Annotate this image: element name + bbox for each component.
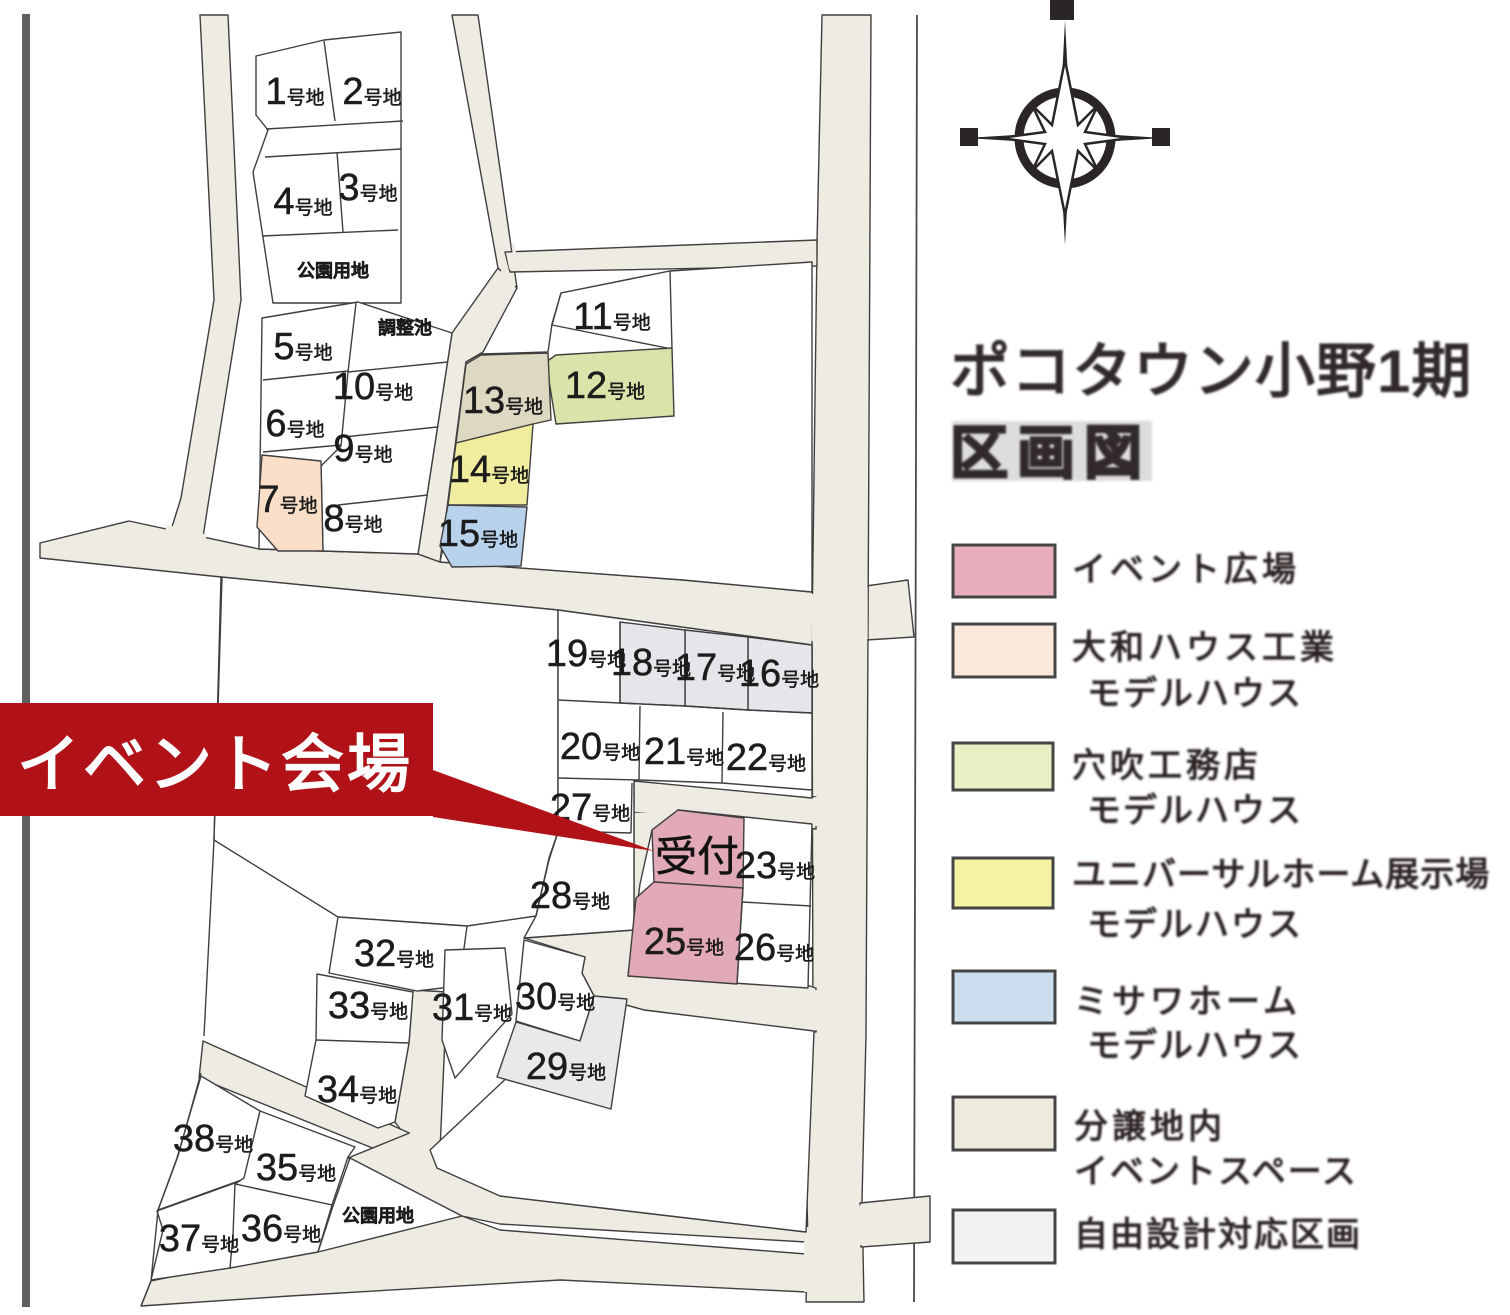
svg-text:モデルハウス: モデルハウス bbox=[1087, 905, 1303, 944]
svg-text:ユニバーサルホーム展示場: ユニバーサルホーム展示場 bbox=[1072, 856, 1490, 894]
svg-text:自由設計対応区画: 自由設計対応区画 bbox=[1074, 1216, 1362, 1254]
svg-text:受付: 受付 bbox=[655, 833, 739, 880]
svg-text:モデルハウス: モデルハウス bbox=[1087, 791, 1303, 830]
svg-text:分譲地内: 分譲地内 bbox=[1074, 1108, 1226, 1146]
svg-text:ポコタウン小野1期: ポコタウン小野1期 bbox=[950, 338, 1472, 405]
svg-text:穴吹工務店: 穴吹工務店 bbox=[1072, 747, 1262, 785]
svg-text:イベント会場: イベント会場 bbox=[17, 730, 413, 800]
svg-text:モデルハウス: モデルハウス bbox=[1087, 1026, 1303, 1065]
svg-text:イベント広場: イベント広場 bbox=[1072, 551, 1300, 589]
svg-text:公園用地: 公園用地 bbox=[297, 260, 369, 281]
svg-text:イベントスペース: イベントスペース bbox=[1074, 1153, 1358, 1191]
svg-text:モデルハウス: モデルハウス bbox=[1087, 674, 1303, 713]
svg-text:公園用地: 公園用地 bbox=[342, 1205, 414, 1226]
svg-text:調整池: 調整池 bbox=[378, 317, 432, 338]
svg-text:大和ハウス工業: 大和ハウス工業 bbox=[1072, 629, 1338, 667]
svg-text:ミサワホーム: ミサワホーム bbox=[1074, 983, 1301, 1021]
